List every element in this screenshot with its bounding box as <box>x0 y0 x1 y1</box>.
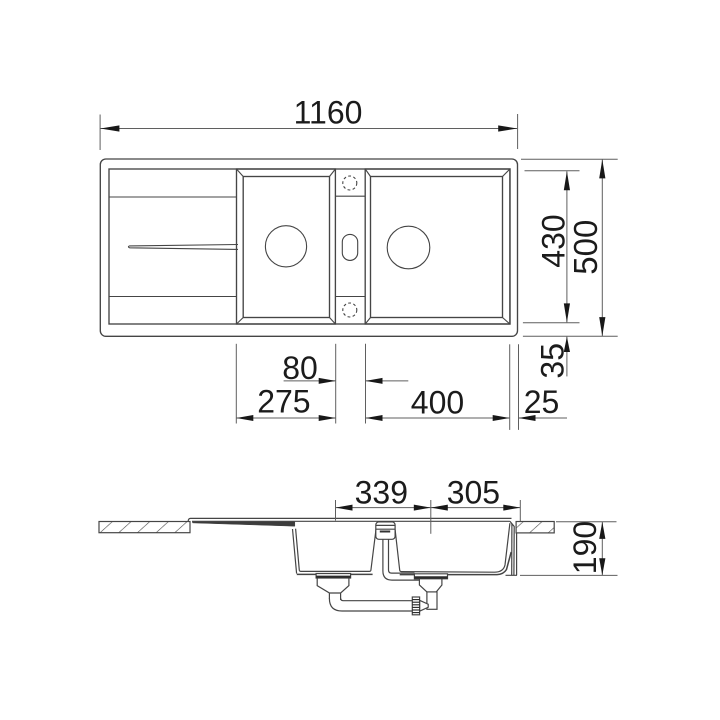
svg-text:35: 35 <box>535 343 571 379</box>
svg-text:190: 190 <box>567 521 603 574</box>
svg-text:400: 400 <box>411 385 464 421</box>
svg-text:500: 500 <box>567 220 604 275</box>
svg-text:305: 305 <box>447 475 500 511</box>
svg-text:1160: 1160 <box>294 95 363 131</box>
svg-text:80: 80 <box>282 350 318 386</box>
svg-text:25: 25 <box>524 384 560 420</box>
svg-text:275: 275 <box>257 384 310 420</box>
svg-text:339: 339 <box>355 475 408 511</box>
